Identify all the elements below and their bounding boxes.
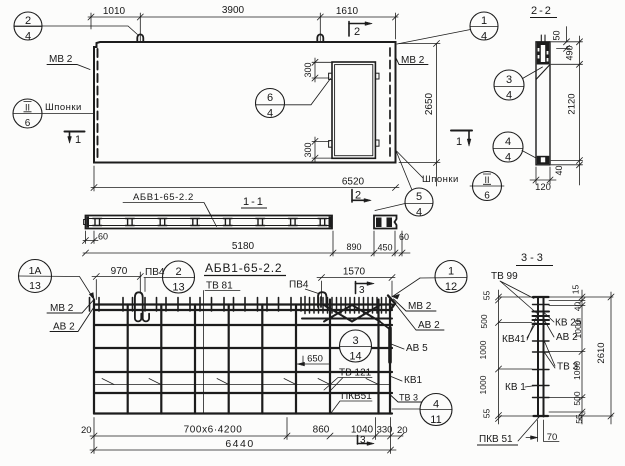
svg-text:АВ 2: АВ 2	[53, 322, 75, 333]
svg-text:2120: 2120	[567, 93, 578, 114]
svg-text:5: 5	[416, 191, 422, 203]
svg-text:2650: 2650	[424, 92, 435, 115]
svg-text:3: 3	[506, 74, 512, 86]
svg-text:ТВ 81: ТВ 81	[206, 281, 233, 292]
svg-text:1610: 1610	[336, 6, 359, 17]
svg-text:330: 330	[377, 425, 393, 436]
svg-text:АВ 2: АВ 2	[418, 320, 440, 331]
svg-text:450: 450	[377, 243, 392, 253]
svg-text:3: 3	[359, 285, 365, 296]
svg-text:4: 4	[505, 152, 511, 164]
svg-text:1-1: 1-1	[243, 196, 265, 208]
svg-text:Шпонки: Шпонки	[45, 102, 82, 113]
svg-text:АБВ1-65-2.2: АБВ1-65-2.2	[133, 192, 194, 203]
svg-text:1000: 1000	[478, 375, 488, 394]
svg-text:970: 970	[111, 266, 128, 277]
svg-text:1: 1	[448, 266, 454, 278]
svg-text:ТВ 99: ТВ 99	[491, 271, 518, 282]
svg-text:20: 20	[397, 425, 408, 436]
svg-text:МВ 2: МВ 2	[408, 301, 432, 312]
svg-text:700х6·4200: 700х6·4200	[184, 425, 243, 436]
svg-text:20: 20	[81, 425, 92, 436]
svg-text:4: 4	[267, 108, 273, 120]
svg-text:2-2: 2-2	[531, 5, 553, 17]
svg-text:ТВ 121: ТВ 121	[339, 368, 372, 379]
svg-text:2: 2	[355, 190, 361, 202]
svg-text:МВ 2: МВ 2	[49, 54, 73, 65]
svg-text:3: 3	[352, 335, 358, 347]
svg-text:КВ41: КВ41	[502, 334, 526, 345]
svg-text:5180: 5180	[232, 241, 255, 252]
svg-text:АБВ1-65-2.2: АБВ1-65-2.2	[205, 261, 282, 275]
svg-text:ТВ 3: ТВ 3	[399, 393, 418, 403]
svg-text:4: 4	[506, 90, 512, 102]
svg-text:2610: 2610	[596, 342, 607, 363]
svg-text:4: 4	[505, 136, 511, 148]
svg-text:6: 6	[484, 191, 490, 202]
svg-text:1А: 1А	[29, 265, 42, 277]
svg-text:ПКВ 51: ПКВ 51	[479, 434, 513, 445]
svg-text:Шпонки: Шпонки	[422, 174, 459, 185]
svg-text:500: 500	[572, 391, 582, 405]
svg-text:15: 15	[571, 285, 581, 295]
svg-text:11: 11	[430, 414, 441, 426]
svg-text:3: 3	[360, 435, 366, 446]
svg-text:55: 55	[574, 414, 584, 424]
svg-text:6520: 6520	[342, 177, 365, 188]
svg-text:КВ 1: КВ 1	[505, 382, 526, 393]
svg-text:6: 6	[267, 92, 273, 104]
svg-text:1: 1	[481, 15, 487, 27]
svg-text:МВ 2: МВ 2	[50, 303, 74, 314]
svg-text:650: 650	[307, 354, 323, 365]
svg-text:70: 70	[547, 432, 558, 443]
svg-text:1040: 1040	[351, 425, 374, 436]
svg-text:860: 860	[313, 425, 330, 436]
svg-text:3900: 3900	[222, 5, 245, 16]
svg-text:ТВ 3: ТВ 3	[557, 362, 579, 373]
svg-text:МВ 2: МВ 2	[401, 55, 425, 66]
svg-text:13: 13	[29, 280, 41, 292]
svg-text:ПВ4: ПВ4	[289, 280, 309, 291]
svg-text:4: 4	[433, 399, 439, 411]
svg-text:55: 55	[482, 291, 492, 301]
svg-text:АВ 5: АВ 5	[406, 343, 428, 354]
svg-text:АВ 2: АВ 2	[556, 332, 578, 343]
svg-text:ПКВ51: ПКВ51	[341, 391, 372, 402]
svg-text:4: 4	[416, 207, 422, 219]
svg-text:14: 14	[349, 351, 361, 363]
svg-text:2: 2	[354, 26, 360, 38]
svg-text:55: 55	[482, 409, 492, 419]
svg-text:1000: 1000	[478, 340, 488, 359]
svg-text:300: 300	[303, 142, 313, 157]
svg-text:6440: 6440	[225, 438, 254, 450]
svg-text:1570: 1570	[343, 267, 366, 278]
svg-text:КВ 25: КВ 25	[555, 318, 582, 329]
svg-text:40: 40	[573, 302, 583, 312]
svg-text:300: 300	[303, 62, 313, 77]
svg-text:ПВ4: ПВ4	[145, 267, 165, 278]
svg-text:II: II	[25, 103, 30, 113]
svg-text:1010: 1010	[103, 6, 126, 17]
svg-text:4: 4	[481, 31, 487, 43]
svg-text:3-3: 3-3	[521, 252, 546, 264]
svg-text:13: 13	[172, 282, 184, 294]
svg-text:1: 1	[456, 136, 462, 148]
svg-text:КВ1: КВ1	[404, 375, 422, 386]
svg-text:60: 60	[399, 232, 409, 242]
svg-text:12: 12	[445, 281, 457, 293]
svg-text:490: 490	[565, 45, 575, 60]
svg-text:60: 60	[98, 232, 108, 242]
svg-text:40: 40	[554, 165, 564, 175]
svg-text:500: 500	[479, 314, 489, 328]
svg-text:2: 2	[25, 15, 31, 27]
svg-text:2: 2	[175, 266, 181, 278]
svg-text:1: 1	[75, 134, 81, 146]
svg-text:II: II	[484, 175, 489, 185]
svg-text:50: 50	[552, 30, 562, 40]
svg-text:6: 6	[25, 118, 31, 129]
svg-text:890: 890	[346, 242, 361, 252]
svg-text:120: 120	[535, 182, 551, 193]
svg-text:4: 4	[25, 31, 31, 43]
